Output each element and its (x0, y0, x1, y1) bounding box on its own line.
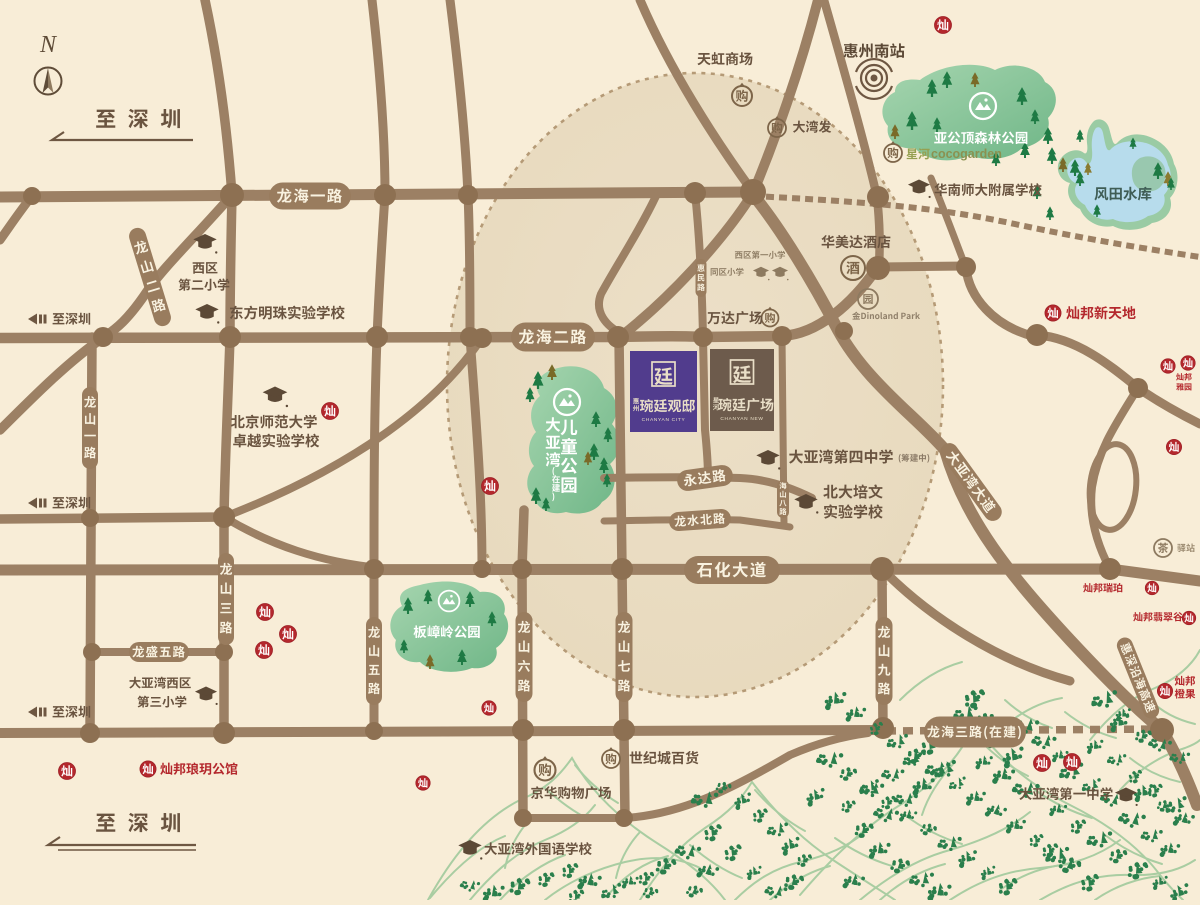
svg-text:N: N (39, 32, 58, 58)
svg-text:CHANYAN NEW: CHANYAN NEW (720, 416, 763, 422)
svg-text:CHANYAN CITY: CHANYAN CITY (642, 417, 686, 423)
svg-text:cocogarden: cocogarden (931, 147, 1002, 161)
